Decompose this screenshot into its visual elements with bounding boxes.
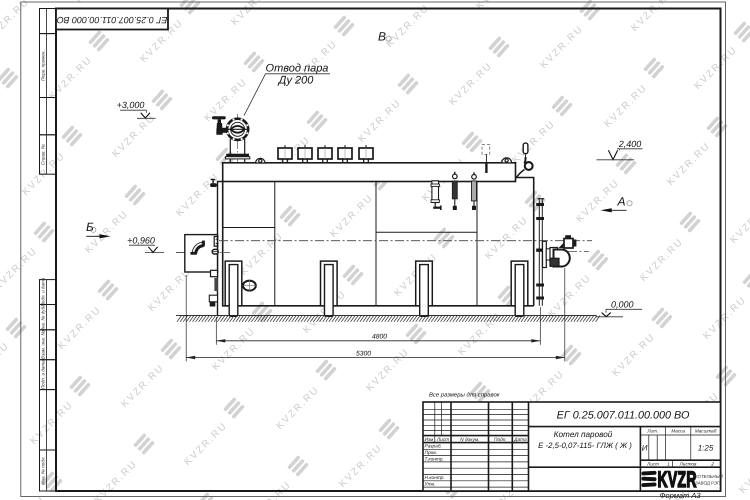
svg-text:1: 1: [667, 462, 670, 467]
svg-text:Перв. примен.: Перв. примен.: [40, 50, 45, 81]
svg-text:N докум.: N докум.: [460, 437, 479, 443]
svg-text:Инв. № подл.: Инв. № подл.: [40, 456, 45, 485]
svg-text:KVZR.RU: KVZR.RU: [0, 494, 48, 500]
svg-text:KVZR.RU: KVZR.RU: [364, 346, 412, 394]
svg-text:Масштаб: Масштаб: [695, 428, 717, 433]
svg-text:Взам. инв. №: Взам. инв. №: [40, 331, 45, 359]
svg-text:KVZR.RU: KVZR.RU: [146, 266, 194, 314]
svg-text:Масса: Масса: [671, 428, 685, 433]
svg-text:Все размеры для справок: Все размеры для справок: [429, 392, 500, 399]
svg-text:Лист: Лист: [436, 437, 449, 443]
svg-text:0,000: 0,000: [611, 299, 634, 309]
svg-text:KVZR.RU: KVZR.RU: [274, 384, 322, 432]
svg-text:Формат А3: Формат А3: [659, 491, 701, 500]
svg-text:+3,000: +3,000: [117, 100, 145, 110]
svg-text:KVZR.RU: KVZR.RU: [56, 304, 104, 352]
svg-text:И: И: [642, 444, 648, 453]
svg-text:KVZR.RU: KVZR.RU: [483, 214, 531, 262]
svg-text:ЕГ 0.25.007.011.00.000 ВО: ЕГ 0.25.007.011.00.000 ВО: [557, 410, 690, 422]
svg-text:KVZR.RU: KVZR.RU: [737, 448, 750, 496]
svg-text:Подп.: Подп.: [494, 437, 507, 443]
svg-text:5300: 5300: [356, 350, 371, 357]
svg-text:KVZR.RU: KVZR.RU: [538, 23, 586, 71]
svg-text:KVZR.RU: KVZR.RU: [602, 82, 650, 130]
svg-text:ЗАВОД РЭП: ЗАВОД РЭП: [695, 481, 721, 486]
svg-text:KVZR.RU: KVZR.RU: [447, 60, 495, 108]
svg-text:Инв. № дубл.: Инв. № дубл.: [40, 303, 45, 331]
svg-text:Н.контр.: Н.контр.: [425, 475, 445, 481]
svg-text:KVZR.RU: KVZR.RU: [356, 97, 404, 145]
svg-text:KVZR.RU: KVZR.RU: [0, 91, 4, 139]
svg-text:KVZR.RU: KVZR.RU: [629, 0, 677, 34]
svg-text:KVZR.RU: KVZR.RU: [0, 245, 40, 293]
svg-text:1:25: 1:25: [698, 444, 714, 453]
svg-text:KVZR.RU: KVZR.RU: [546, 272, 594, 320]
svg-text:KVZR.RU: KVZR.RU: [229, 0, 277, 28]
svg-text:Лист: Лист: [646, 462, 659, 467]
svg-text:KVZR.RU: KVZR.RU: [574, 177, 622, 225]
svg-text:Утв.: Утв.: [425, 482, 436, 488]
svg-text:KVZR.RU: KVZR.RU: [638, 236, 686, 284]
svg-text:Листов: Листов: [679, 462, 697, 467]
svg-text:KVZR.RU: KVZR.RU: [110, 112, 158, 160]
svg-text:KVZR.RU: KVZR.RU: [174, 171, 222, 219]
svg-text:Подп. и дата: Подп. и дата: [40, 360, 45, 389]
svg-text:KVZR.RU: KVZR.RU: [119, 362, 167, 410]
svg-text:Е -2,5-0,07-115- ГЛЖ ( Ж ): Е -2,5-0,07-115- ГЛЖ ( Ж ): [538, 441, 632, 450]
svg-text:4800: 4800: [372, 334, 387, 341]
svg-text:KVZR.RU: KVZR.RU: [182, 420, 230, 468]
svg-text:KVZR.RU: KVZR.RU: [74, 0, 122, 6]
svg-text:2: 2: [710, 462, 714, 467]
svg-text:KVZR.RU: KVZR.RU: [610, 331, 658, 379]
svg-text:KVZR.RU: KVZR.RU: [510, 118, 558, 166]
svg-text:Лит.: Лит.: [646, 428, 658, 433]
svg-text:KVZR.RU: KVZR.RU: [337, 442, 385, 490]
svg-text:KVZR.RU: KVZR.RU: [47, 54, 95, 102]
svg-text:KVZR.RU: KVZR.RU: [238, 230, 286, 278]
svg-text:KVZR.RU: KVZR.RU: [665, 140, 713, 188]
svg-text:KVZR.RU: KVZR.RU: [92, 458, 140, 500]
svg-text:КОТЕЛЬНЫЙ: КОТЕЛЬНЫЙ: [695, 474, 723, 479]
svg-text:KVZR.RU: KVZR.RU: [692, 44, 740, 92]
svg-text:2,400: 2,400: [618, 139, 642, 149]
svg-text:Разраб.: Разраб.: [425, 444, 442, 450]
svg-text:Справ. №: Справ. №: [40, 144, 45, 165]
svg-text:KVZR.RU: KVZR.RU: [0, 0, 32, 44]
svg-text:KVZR: KVZR: [658, 467, 697, 492]
svg-text:KVZR.RU: KVZR.RU: [202, 76, 250, 124]
svg-text:Изм: Изм: [424, 437, 434, 443]
svg-text:Т.контр.: Т.контр.: [425, 456, 444, 462]
svg-text:Отвод пара: Отвод пара: [266, 63, 329, 75]
svg-text:ЕГ 0.25.007.011.00.000 ВО: ЕГ 0.25.007.011.00.000 ВО: [57, 15, 168, 25]
svg-text:KVZR.RU: KVZR.RU: [210, 325, 258, 373]
svg-text:KVZR.RU: KVZR.RU: [728, 198, 750, 246]
svg-text:Дата: Дата: [513, 437, 527, 443]
svg-text:KVZR.RU: KVZR.RU: [328, 192, 376, 240]
svg-text:+0,960: +0,960: [127, 235, 155, 245]
svg-text:KVZR.RU: KVZR.RU: [0, 340, 12, 388]
svg-text:А: А: [617, 195, 626, 209]
svg-text:Котел паровой: Котел паровой: [554, 430, 613, 439]
svg-text:Пров.: Пров.: [425, 450, 438, 456]
svg-text:KVZR.RU: KVZR.RU: [28, 399, 76, 447]
svg-text:Подп. и дата: Подп. и дата: [40, 277, 45, 306]
svg-text:В: В: [378, 30, 386, 44]
svg-text:Ду 200: Ду 200: [277, 75, 315, 87]
